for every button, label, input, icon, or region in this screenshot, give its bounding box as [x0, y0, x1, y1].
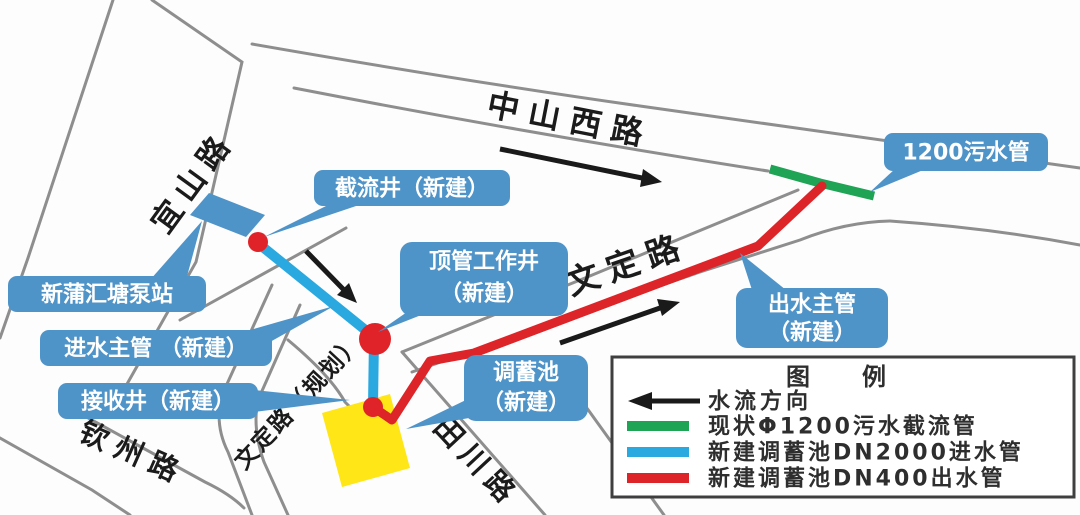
callout-label-outlet-main-line1: 出水主管	[768, 292, 856, 318]
legend-label-flow-direction: 水流方向	[708, 389, 812, 415]
legend-label-outlet-dn400: 新建调蓄池DN400出水管	[708, 466, 1006, 492]
road-label-tianchuan: 田川路	[427, 410, 528, 514]
legend-title: 图 例	[786, 363, 900, 391]
callout-label-intercept-well: 截流井（新建）	[335, 176, 489, 202]
callout-pointer-sewer-pipe	[870, 168, 928, 192]
pipeline-plan-map: 中山西路 宜山路 文定路 文定路（规划） 钦州路 田川路 截流井（新建） 顶管工…	[0, 0, 1080, 515]
callout-label-storage-tank-line2: （新建）	[482, 390, 570, 416]
legend-label-inlet-dn2000: 新建调蓄池DN2000进水管	[708, 440, 1024, 466]
callout-label-jacking-well-line1: 顶管工作井	[429, 249, 539, 275]
node-receiving-well	[363, 397, 383, 417]
legend-swatch-existing-sewer	[627, 421, 689, 431]
callout-label-pump-station: 新蒲汇塘泵站	[41, 282, 173, 308]
flow-arrow-zhongshan-head	[640, 169, 662, 187]
node-intercept-well	[248, 232, 268, 252]
map-canvas: 中山西路 宜山路 文定路 文定路（规划） 钦州路 田川路 截流井（新建） 顶管工…	[0, 0, 1080, 515]
callout-label-jacking-well-line2: （新建）	[440, 281, 528, 307]
callout-label-receiving-well: 接收井（新建）	[81, 389, 235, 415]
callout-label-outlet-main-line2: （新建）	[768, 320, 856, 346]
legend-swatch-outlet-dn400	[627, 473, 689, 483]
legend-swatch-inlet-dn2000	[627, 447, 689, 457]
flow-arrow-wending-head	[657, 299, 680, 316]
legend-label-existing-sewer: 现状Φ1200污水截流管	[708, 414, 978, 440]
legend: 图 例 水流方向 现状Φ1200污水截流管 新建调蓄池DN2000进水管 新建调…	[612, 357, 1074, 497]
road-label-qinzhou: 钦州路	[74, 414, 192, 491]
callout-label-storage-tank-line1: 调蓄池	[493, 361, 559, 386]
callout-label-inlet-main: 进水主管 （新建）	[64, 336, 248, 362]
callout-label-sewer-pipe: 1200污水管	[902, 140, 1029, 166]
callout-pointer-intercept-well	[264, 204, 362, 237]
flow-arrow-zhongshan-shaft	[500, 149, 642, 178]
